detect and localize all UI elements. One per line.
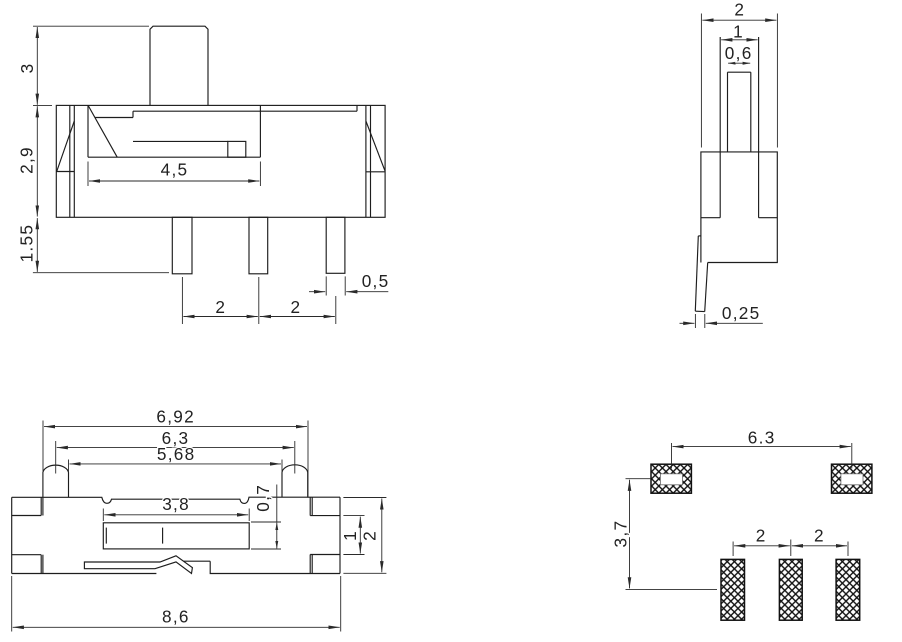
svg-text:8,6: 8,6 (162, 606, 190, 626)
svg-text:0,5: 0,5 (362, 271, 390, 291)
svg-text:6.3: 6.3 (748, 428, 776, 448)
svg-text:4,5: 4,5 (161, 160, 189, 180)
svg-text:2,9: 2,9 (16, 146, 36, 174)
svg-text:0,25: 0,25 (722, 303, 761, 323)
svg-text:2: 2 (290, 297, 301, 317)
svg-text:1: 1 (340, 530, 360, 541)
svg-text:2: 2 (215, 297, 226, 317)
svg-text:3: 3 (17, 63, 37, 74)
svg-text:0,6: 0,6 (725, 43, 753, 63)
svg-text:6,92: 6,92 (156, 407, 195, 427)
svg-text:2: 2 (756, 526, 767, 546)
svg-text:2: 2 (360, 530, 380, 541)
svg-text:1.55: 1.55 (16, 224, 36, 263)
svg-text:0,7: 0,7 (253, 484, 273, 512)
svg-text:5,68: 5,68 (157, 444, 196, 464)
svg-text:2: 2 (814, 526, 825, 546)
svg-text:3,8: 3,8 (162, 494, 190, 514)
svg-text:3,7: 3,7 (611, 520, 631, 548)
svg-text:2: 2 (734, 0, 745, 19)
svg-text:1: 1 (733, 22, 744, 42)
